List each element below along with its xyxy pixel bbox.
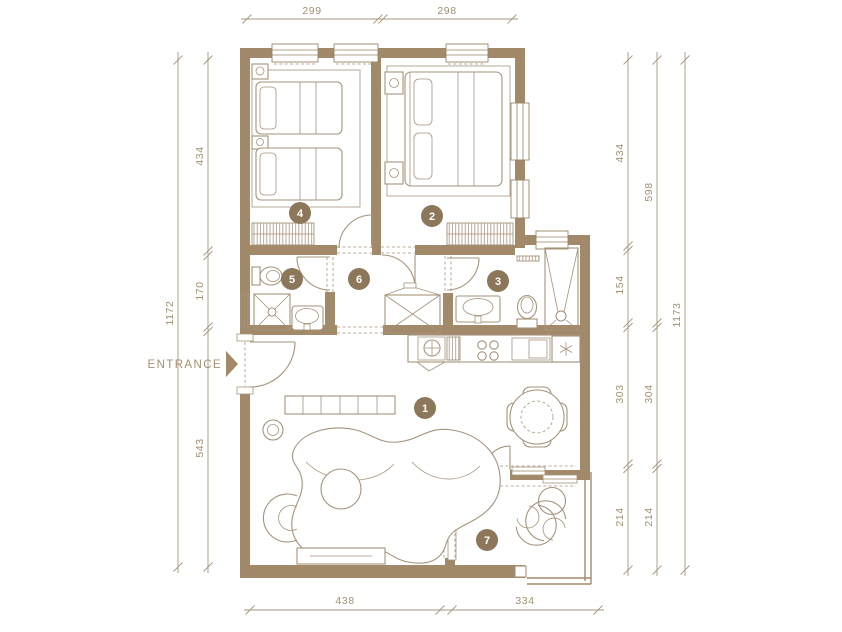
dim-right-434: 434 bbox=[614, 143, 626, 162]
badge-room-1: 1 bbox=[414, 397, 436, 419]
wall-right-mid bbox=[580, 245, 590, 480]
badge-room-3: 3 bbox=[487, 270, 509, 292]
shelf-bathroom-main bbox=[517, 256, 539, 261]
toilet bbox=[252, 267, 282, 285]
door-shower-room bbox=[297, 257, 333, 292]
single-bed-2 bbox=[256, 148, 342, 200]
badge-room-7: 7 bbox=[476, 529, 498, 551]
window-bathroom-main bbox=[536, 231, 568, 249]
entrance-door bbox=[237, 334, 295, 394]
sink bbox=[456, 296, 500, 323]
floor-plan-drawing: 299 298 438 334 434 170 543 1172 434 154… bbox=[0, 0, 842, 632]
drain-icon bbox=[268, 308, 276, 316]
sink bbox=[292, 306, 323, 330]
sideboard bbox=[285, 396, 395, 414]
dim-right-214: 214 bbox=[614, 507, 626, 526]
dim-bottom-2: 334 bbox=[515, 595, 534, 607]
wall-bottom bbox=[240, 565, 525, 578]
wardrobe-bedroom-twin bbox=[252, 223, 314, 245]
entrance-arrow-icon bbox=[226, 351, 238, 377]
dim-left-434: 434 bbox=[194, 146, 206, 165]
floor-plan-page: 299 298 438 334 434 170 543 1172 434 154… bbox=[0, 0, 842, 632]
single-bed-1 bbox=[256, 82, 342, 134]
dim-left-170: 170 bbox=[194, 281, 206, 300]
tap-icon bbox=[304, 324, 310, 330]
toilet bbox=[517, 296, 537, 329]
dim-rightmid-214: 214 bbox=[643, 507, 655, 526]
wall-band-top-a bbox=[250, 245, 337, 255]
room-number: 1 bbox=[422, 403, 428, 415]
kitchen-counter bbox=[408, 335, 580, 371]
dim-rightmid-598: 598 bbox=[643, 182, 655, 201]
furniture-bedroom-twin bbox=[252, 64, 342, 200]
dim-top-1: 299 bbox=[302, 5, 321, 17]
wardrobe-bedroom-master bbox=[447, 223, 513, 245]
badge-room-5: 5 bbox=[281, 268, 303, 290]
entrance-marker: ENTRANCE bbox=[148, 351, 238, 377]
room-number: 4 bbox=[297, 208, 304, 220]
room-number: 2 bbox=[429, 211, 435, 223]
furniture-bedroom-master bbox=[385, 72, 502, 186]
lounge-chair-2 bbox=[526, 501, 566, 541]
wall-band-top-b bbox=[372, 245, 381, 255]
dim-left-total: 1172 bbox=[164, 301, 176, 326]
dim-right-303: 303 bbox=[614, 384, 626, 403]
room-number: 5 bbox=[289, 274, 295, 286]
nightstand bbox=[252, 64, 268, 79]
wall-end-cap bbox=[515, 566, 526, 577]
dim-top-2: 298 bbox=[437, 5, 456, 17]
door-bedroom-twin bbox=[337, 215, 372, 255]
window-bedroom-twin-1 bbox=[272, 44, 318, 64]
plant-pot bbox=[263, 420, 283, 440]
radiator-shower-room bbox=[241, 294, 249, 328]
window-master-side-1 bbox=[511, 103, 529, 160]
dining-set bbox=[507, 387, 567, 447]
opening-hall-living bbox=[337, 325, 383, 335]
wall-bath5-hall bbox=[325, 292, 335, 335]
shower-tray bbox=[254, 294, 290, 330]
wall-band-top-c bbox=[415, 245, 515, 255]
nightstand bbox=[385, 162, 403, 184]
window-bedroom-twin-2 bbox=[334, 44, 378, 64]
wall-hall-bath3 bbox=[443, 293, 453, 335]
nightstand bbox=[252, 136, 268, 149]
furniture-living-kitchen bbox=[263, 335, 580, 564]
entrance-label: ENTRANCE bbox=[148, 359, 222, 371]
dim-left-543: 543 bbox=[194, 438, 206, 457]
double-bed bbox=[405, 72, 502, 186]
sofa-organic bbox=[292, 428, 500, 563]
drain-icon bbox=[556, 311, 566, 321]
furniture-balcony bbox=[516, 488, 565, 546]
tap-icon bbox=[475, 316, 481, 323]
room-number: 3 bbox=[495, 276, 501, 288]
shower-cabin bbox=[545, 248, 578, 330]
dishwasher bbox=[447, 337, 460, 360]
window-master-side-2 bbox=[511, 180, 529, 218]
dim-right-154: 154 bbox=[614, 275, 626, 294]
dim-right-total: 1173 bbox=[671, 303, 683, 328]
door-bedroom-master bbox=[381, 245, 415, 288]
badge-room-6: 6 bbox=[348, 268, 370, 290]
dining-table bbox=[510, 390, 564, 444]
room-number: 7 bbox=[484, 535, 490, 547]
window-bedroom-master bbox=[446, 44, 488, 64]
room-number: 6 bbox=[356, 274, 362, 286]
pouf bbox=[321, 469, 361, 509]
badge-room-2: 2 bbox=[421, 205, 443, 227]
badge-room-4: 4 bbox=[289, 202, 311, 224]
tv-stand bbox=[297, 548, 385, 564]
door-bathroom-main bbox=[445, 256, 479, 292]
nightstand bbox=[385, 72, 403, 94]
dim-bottom-1: 438 bbox=[335, 595, 354, 607]
dim-rightmid-304: 304 bbox=[643, 384, 655, 403]
